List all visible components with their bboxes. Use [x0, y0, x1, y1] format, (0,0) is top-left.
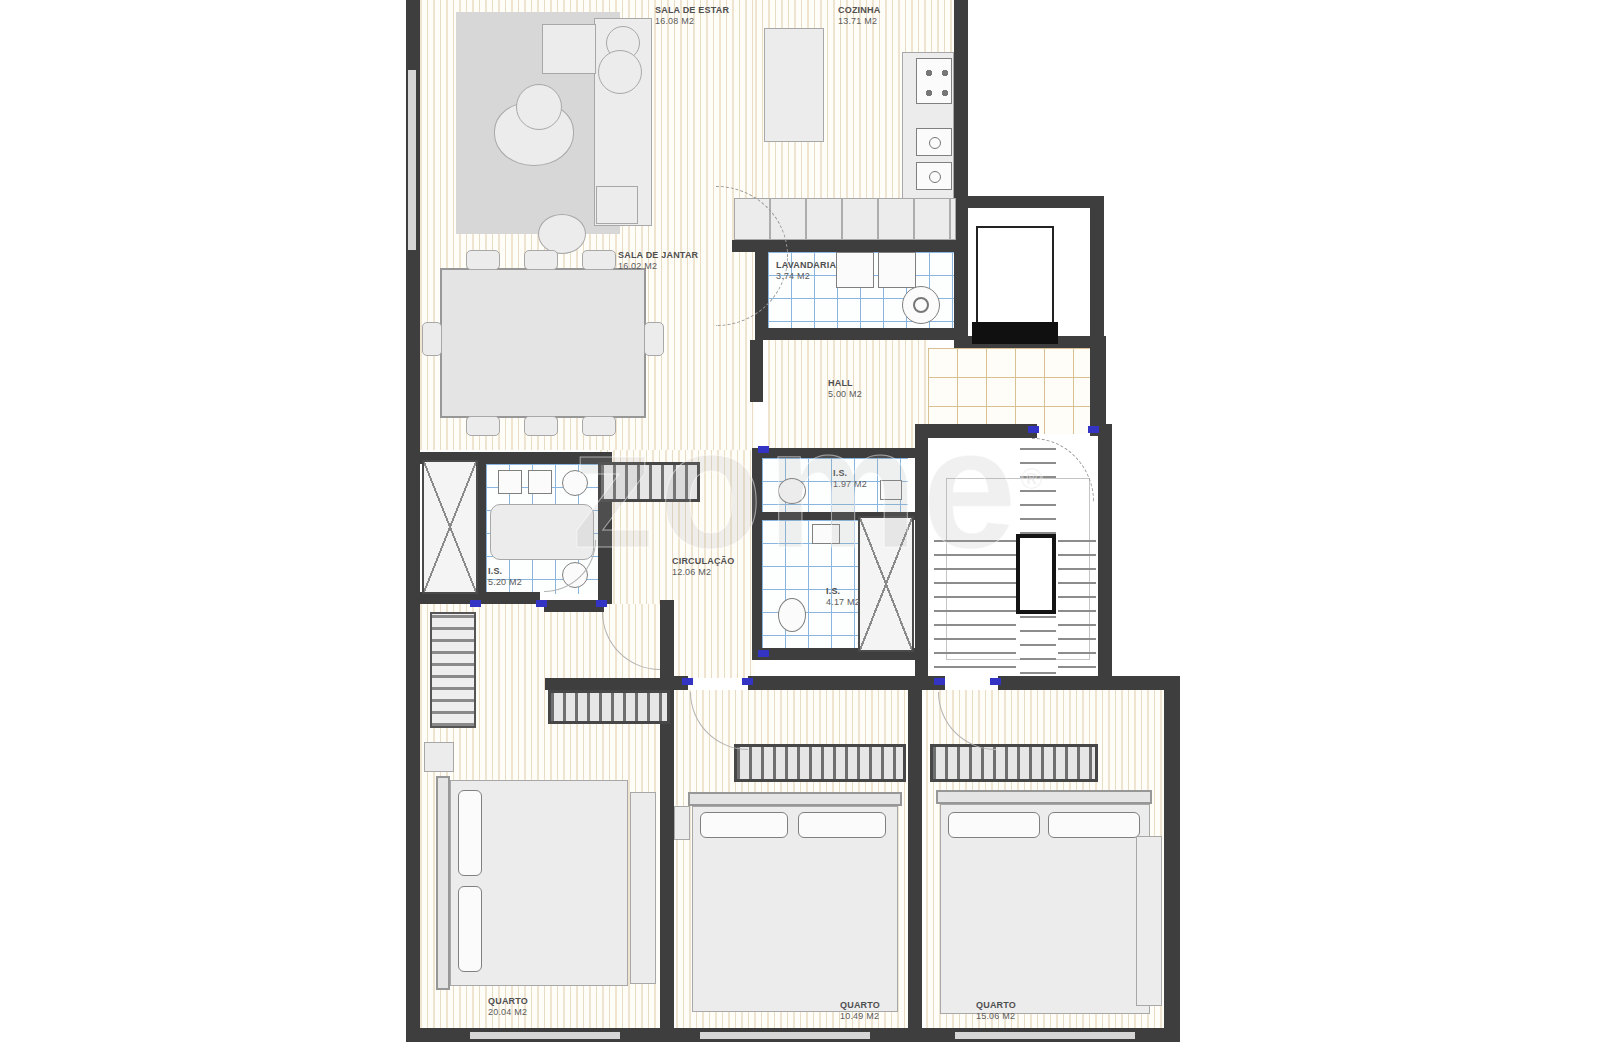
- room-label-cozinha: COZINHA 13.71 M2: [838, 5, 880, 27]
- dining-chair: [466, 416, 500, 436]
- sink-drain-icon: [913, 297, 929, 313]
- room-area: 10.49 M2: [840, 1011, 879, 1021]
- wall-stair-right: [1098, 424, 1112, 690]
- room-area: 16.08 M2: [655, 16, 694, 26]
- pillow: [1048, 812, 1140, 838]
- sink-drain-icon: [929, 137, 941, 149]
- nightstand: [424, 742, 454, 772]
- wardrobe-bedroom-3: [930, 744, 1098, 782]
- room-name: SALA DE ESTAR: [655, 5, 729, 15]
- window-bed2: [700, 1032, 870, 1039]
- door-jamb-mark: [990, 678, 1001, 685]
- wall-corridor-bottom: [545, 678, 665, 690]
- vanity-basin: [498, 470, 522, 494]
- wall-laundry-bottom: [755, 328, 968, 340]
- wall-kitchen-right: [954, 0, 968, 208]
- dining-chair: [644, 322, 664, 356]
- wall-leftbath-bottom-b: [544, 600, 604, 612]
- sink-drain-icon: [929, 171, 941, 183]
- room-area: 16.02 M2: [618, 261, 657, 271]
- dining-chair: [582, 250, 616, 270]
- toilet-icon: [778, 598, 806, 632]
- room-name: QUARTO: [976, 1000, 1016, 1010]
- door-jamb-mark: [934, 678, 945, 685]
- wardrobe-bedroom-1: [430, 612, 476, 728]
- room-name: QUARTO: [840, 1000, 880, 1010]
- washer-icon: [836, 252, 874, 288]
- dining-chair: [524, 416, 558, 436]
- room-label-quarto-1: QUARTO 20.04 M2: [488, 996, 528, 1018]
- bed-headboard: [436, 776, 450, 990]
- wall-right-outer: [1164, 688, 1180, 1042]
- dining-chair: [524, 250, 558, 270]
- door-jamb-mark: [1088, 426, 1099, 433]
- watermark-registered-icon: ®: [1021, 462, 1047, 495]
- window-bed1: [470, 1032, 620, 1039]
- wall-bed2-bed3-divider: [908, 690, 922, 1042]
- room-name: QUARTO: [488, 996, 528, 1006]
- side-table: [596, 186, 638, 224]
- room-name: I.S.: [488, 566, 502, 576]
- wall-stair-bottom-b: [998, 676, 1180, 690]
- room-area: 5.20 M2: [488, 577, 522, 587]
- wardrobe-corridor-bottom: [548, 690, 670, 724]
- elevator-door: [972, 322, 1058, 344]
- pillow: [798, 812, 886, 838]
- wall-bed1-divider: [660, 600, 674, 1042]
- bed-headboard: [688, 792, 902, 806]
- room-area: 13.71 M2: [838, 16, 877, 26]
- door-jamb-mark: [536, 600, 547, 607]
- room-name: COZINHA: [838, 5, 880, 15]
- room-name: SALA DE JANTAR: [618, 250, 698, 260]
- pillow: [948, 812, 1040, 838]
- room-label-sala-de-jantar: SALA DE JANTAR 16.02 M2: [618, 250, 698, 272]
- sofa-chaise: [542, 24, 596, 74]
- room-label-sala-de-estar: SALA DE ESTAR 16.08 M2: [655, 5, 729, 27]
- door-jamb-mark: [758, 650, 769, 657]
- dining-chair: [466, 250, 500, 270]
- bed-desk: [1136, 836, 1162, 1006]
- watermark-text: zome: [570, 393, 1021, 583]
- door-jamb-mark: [596, 600, 607, 607]
- wardrobe-bedroom-2: [734, 744, 906, 782]
- room-area: 20.04 M2: [488, 1007, 527, 1017]
- floor-plan: SALA DE ESTAR 16.08 M2 COZINHA 13.71 M2 …: [0, 0, 1600, 1062]
- pouf-2: [598, 50, 642, 94]
- window-bed3: [955, 1032, 1135, 1039]
- nightstand: [674, 806, 690, 840]
- door-jamb-mark: [470, 600, 481, 607]
- vanity-basin: [528, 470, 552, 494]
- laundry-sink-icon: [902, 286, 940, 324]
- watermark: zome®: [570, 390, 1047, 586]
- room-name: LAVANDARIA: [776, 260, 836, 270]
- dryer-icon: [878, 252, 916, 288]
- wall-elevator-left: [954, 208, 968, 348]
- wall-bed2-top-b: [748, 676, 920, 690]
- wall-elevator-top: [954, 196, 1104, 208]
- room-label-quarto-3: QUARTO 15.06 M2: [976, 1000, 1016, 1022]
- room-name: I.S.: [826, 586, 840, 596]
- armchair-cushion: [516, 84, 562, 130]
- kitchen-sink-2: [916, 162, 952, 190]
- window-left: [408, 70, 416, 250]
- room-area: 4.17 M2: [826, 597, 860, 607]
- room-name: HALL: [828, 378, 853, 388]
- bed-bench: [630, 792, 656, 984]
- shaft-closet-left: [422, 460, 478, 594]
- room-label-quarto-2: QUARTO 10.49 M2: [840, 1000, 880, 1022]
- room-label-lavandaria: LAVANDARIA 3.74 M2: [776, 260, 836, 282]
- door-jamb-mark: [682, 678, 693, 685]
- pillow: [700, 812, 788, 838]
- wall-hall-right: [1090, 336, 1106, 436]
- room-area: 15.06 M2: [976, 1011, 1015, 1021]
- door-jamb-mark: [742, 678, 753, 685]
- pillow: [458, 790, 482, 876]
- kitchen-island: [764, 28, 824, 142]
- cooktop-icon: [916, 58, 952, 104]
- stair-treads-right: [1058, 532, 1096, 668]
- room-label-is-mid: I.S. 4.17 M2: [826, 586, 860, 608]
- wall-elevator-right: [1090, 196, 1104, 348]
- pillow: [458, 886, 482, 972]
- room-label-is-left: I.S. 5.20 M2: [488, 566, 522, 588]
- room-area: 3.74 M2: [776, 271, 810, 281]
- coffee-table: [538, 214, 586, 254]
- stair-flight-bottom: [1020, 614, 1056, 674]
- dining-chair: [422, 322, 442, 356]
- elevator-car: [976, 226, 1054, 330]
- bed-headboard: [936, 790, 1152, 804]
- kitchen-sink-1: [916, 128, 952, 156]
